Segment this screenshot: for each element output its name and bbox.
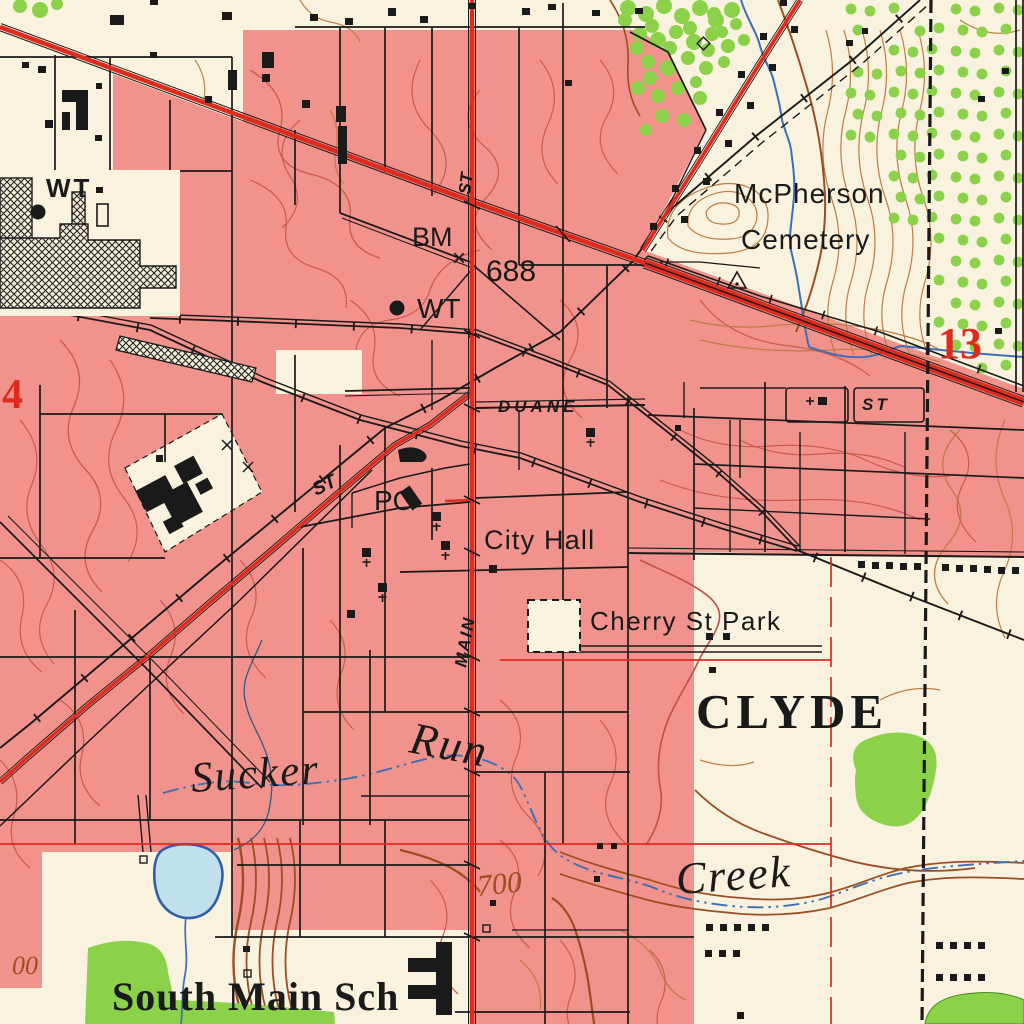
svg-text:00: 00 bbox=[12, 951, 38, 980]
svg-text:PO: PO bbox=[374, 485, 414, 516]
svg-text:McPherson: McPherson bbox=[734, 178, 885, 209]
svg-text:13: 13 bbox=[938, 319, 982, 368]
svg-text:Cherry St Park: Cherry St Park bbox=[590, 606, 782, 636]
svg-text:WT: WT bbox=[46, 173, 92, 203]
svg-text:BM: BM bbox=[412, 222, 453, 252]
svg-text:Sucker: Sucker bbox=[189, 746, 321, 802]
svg-text:City Hall: City Hall bbox=[484, 525, 595, 555]
svg-text:ST: ST bbox=[455, 170, 477, 195]
svg-text:700: 700 bbox=[475, 865, 523, 903]
svg-text:Creek: Creek bbox=[674, 846, 793, 904]
svg-text:South Main Sch: South Main Sch bbox=[112, 974, 399, 1019]
svg-text:DUANE: DUANE bbox=[498, 397, 578, 416]
svg-text:WT: WT bbox=[417, 293, 461, 324]
svg-text:CLYDE: CLYDE bbox=[696, 684, 888, 739]
svg-text:Cemetery: Cemetery bbox=[741, 224, 870, 255]
svg-text:ST: ST bbox=[862, 395, 890, 414]
svg-text:4: 4 bbox=[2, 372, 23, 418]
svg-text:×: × bbox=[452, 245, 466, 272]
svg-text:688: 688 bbox=[486, 255, 536, 288]
